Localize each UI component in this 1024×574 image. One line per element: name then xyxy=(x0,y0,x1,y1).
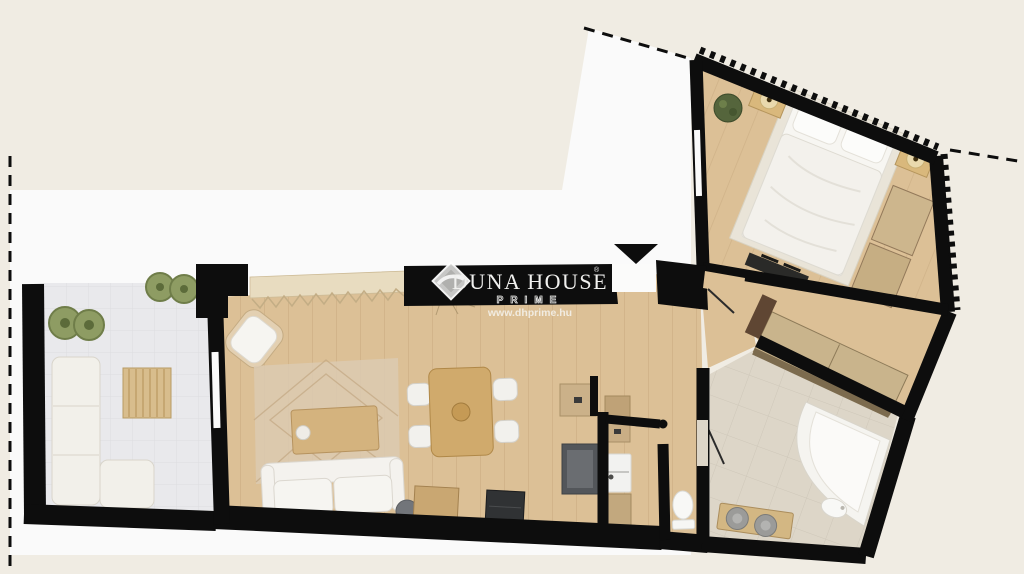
registered-mark: ® xyxy=(594,266,600,274)
terrace-sofa-long xyxy=(52,357,100,505)
cabinet-handle xyxy=(574,397,582,403)
brand-tier: PRIME xyxy=(497,295,564,306)
plant-leaf xyxy=(729,108,737,116)
terrace-bottom-wall xyxy=(24,514,216,521)
bathroom-door-gap xyxy=(697,420,708,466)
toilet-tank xyxy=(672,520,694,530)
bush-center xyxy=(60,318,70,328)
toilet xyxy=(671,491,694,530)
terrace-left-wall xyxy=(33,284,35,514)
door-knob xyxy=(659,420,668,429)
plant-leaf xyxy=(719,100,727,108)
dining-chair xyxy=(494,420,519,443)
coffee-table xyxy=(291,406,379,454)
terrace-door-glass xyxy=(215,352,217,428)
dining-chair xyxy=(408,425,433,448)
kitchen-stub-wall xyxy=(606,419,660,424)
toilet-bowl xyxy=(672,491,693,520)
dining-chair xyxy=(407,383,432,406)
entrance-side-block xyxy=(656,260,708,310)
bush-center xyxy=(84,320,94,330)
bush-center xyxy=(156,283,164,291)
floor-plan-image: DUNA HOUSE ® PRIME www.dhprime.hu xyxy=(0,0,1024,574)
dining-chair xyxy=(493,378,518,401)
sofa-cushion xyxy=(333,475,393,514)
table-centerpiece xyxy=(452,403,471,422)
potted-plant xyxy=(714,94,742,122)
wc-partition-wall xyxy=(663,444,665,540)
dark-sideboard-inner xyxy=(567,450,593,488)
brand-website: www.dhprime.hu xyxy=(487,307,572,319)
entrance-door-area xyxy=(612,264,656,292)
cabinet-handle xyxy=(614,429,621,434)
floor-plan: DUNA HOUSE ® PRIME www.dhprime.hu xyxy=(0,0,1024,574)
bedroom-window xyxy=(697,130,699,196)
bedroom-plant xyxy=(714,94,742,122)
washer-knob xyxy=(609,475,614,480)
terrace-table xyxy=(123,368,171,418)
terrace-sofa-corner xyxy=(100,460,154,508)
cup xyxy=(296,425,311,440)
brand-name: DUNA HOUSE xyxy=(452,269,608,294)
bush-center xyxy=(180,285,188,293)
